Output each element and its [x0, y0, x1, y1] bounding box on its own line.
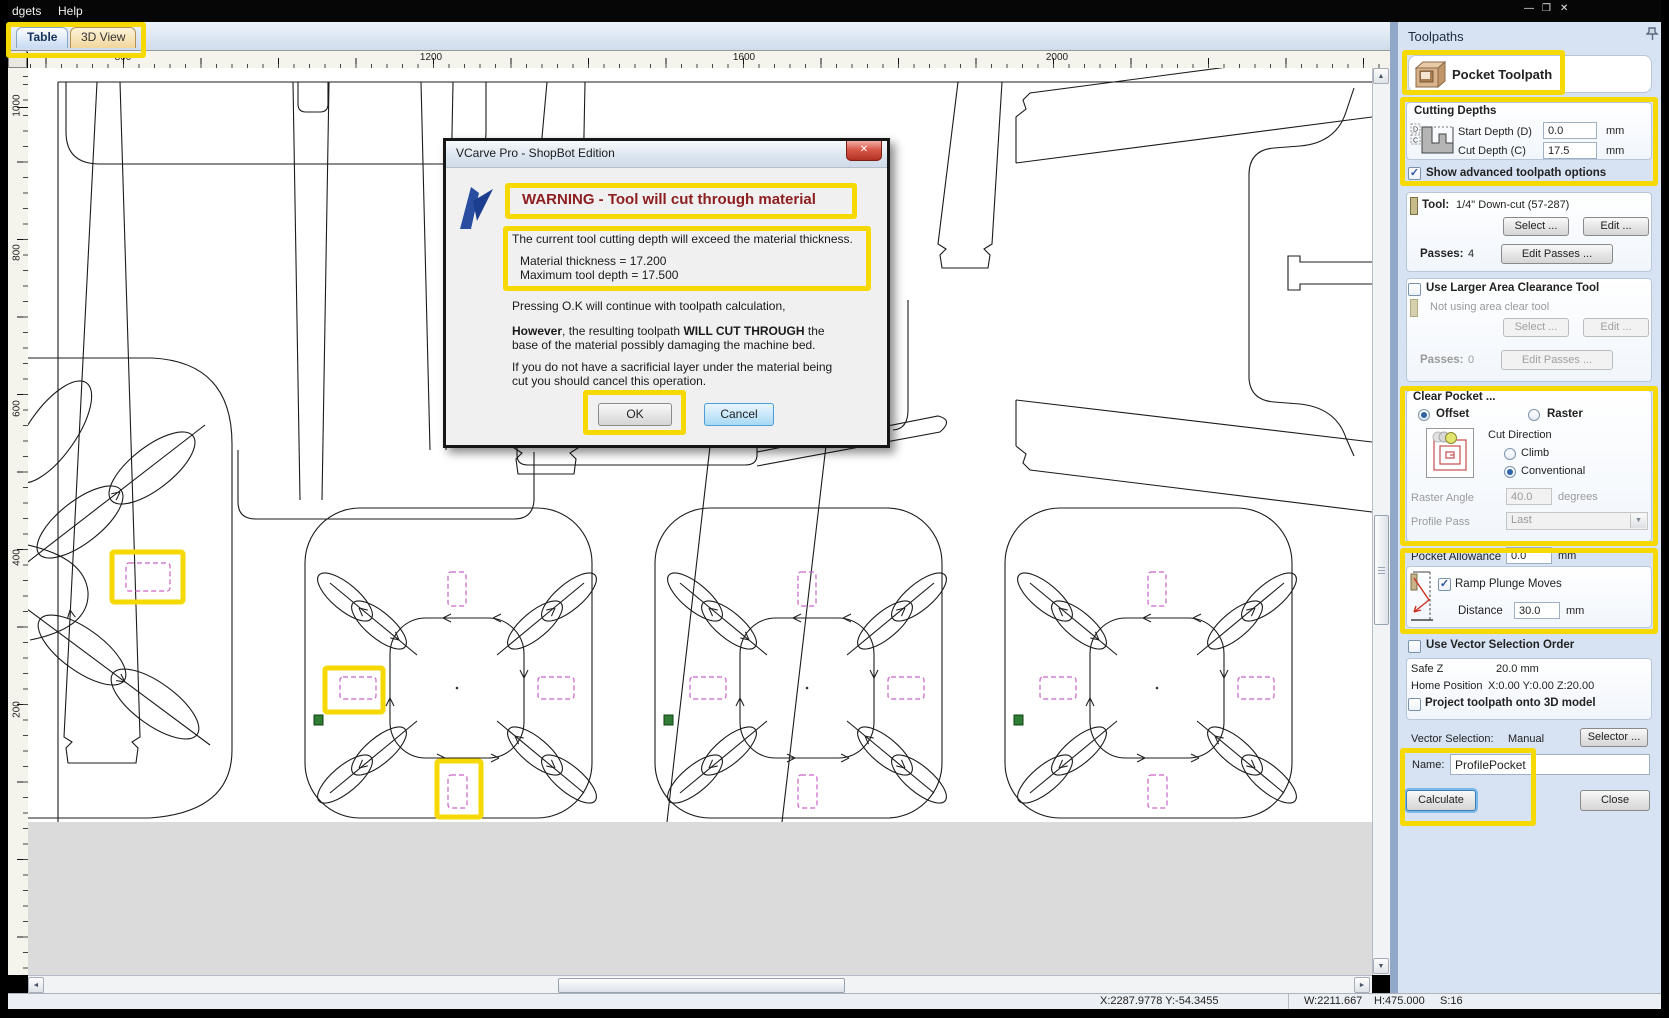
raster-radio[interactable]	[1528, 409, 1540, 421]
ramp-distance-input[interactable]	[1514, 602, 1560, 619]
highlight-boxes-canvas	[112, 552, 481, 817]
tab-3d-view[interactable]: 3D View	[70, 27, 136, 48]
cutting-depths-icon: D C	[1410, 121, 1454, 159]
vertical-scrollbar[interactable]: ▲ ▼	[1372, 68, 1391, 975]
selection-width: W:2211.667	[1304, 995, 1362, 1007]
area-passes-value: 0	[1468, 354, 1474, 366]
menu-item-gadgets[interactable]: dgets	[12, 4, 41, 18]
pin-icon[interactable]	[1646, 27, 1659, 42]
area-edit-passes-button[interactable]: Edit Passes ...	[1501, 350, 1613, 370]
ruler-label: 200	[12, 695, 23, 725]
show-advanced-label: Show advanced toolpath options	[1426, 167, 1606, 179]
ruler-label: 800	[115, 52, 132, 63]
area-clearance-label: Use Larger Area Clearance Tool	[1426, 282, 1599, 294]
toolpath-pattern-2	[661, 565, 954, 811]
start-depth-label: Start Depth (D)	[1458, 126, 1532, 138]
dialog-close-icon[interactable]: ✕	[846, 141, 882, 161]
horizontal-ruler: 800 1200 1600 2000	[28, 50, 1390, 70]
scroll-right-icon[interactable]: ►	[1354, 977, 1370, 993]
cut-depth-unit: mm	[1606, 145, 1624, 157]
svg-text:C: C	[1413, 138, 1418, 145]
vertical-scroll-thumb[interactable]	[1374, 515, 1389, 625]
ruler-label: 1200	[420, 52, 442, 63]
ramp-plunge-icon	[1409, 570, 1435, 624]
raster-angle-label: Raster Angle	[1411, 492, 1474, 504]
ramp-plunge-checkbox[interactable]: ✓	[1438, 578, 1451, 591]
selection-count: S:16	[1440, 995, 1463, 1007]
ruler-label: 400	[12, 543, 23, 573]
vector-selection-label: Vector Selection:	[1411, 733, 1494, 745]
restore-icon[interactable]: ❐	[1542, 3, 1551, 14]
dialog-titlebar[interactable]: VCarve Pro - ShopBot Edition ✕	[446, 141, 887, 168]
passes-value: 4	[1468, 248, 1474, 260]
tool-label: Tool:	[1422, 199, 1449, 211]
tab-table[interactable]: Table	[16, 27, 68, 48]
ramp-plunge-label: Ramp Plunge Moves	[1455, 578, 1562, 590]
dialog-title: VCarve Pro - ShopBot Edition	[456, 146, 615, 160]
conventional-label: Conventional	[1521, 465, 1585, 477]
selection-height: H:475.000	[1374, 995, 1425, 1007]
ramp-distance-label: Distance	[1458, 605, 1503, 617]
dialog-para-however: However, the resulting toolpath WILL CUT…	[512, 324, 852, 352]
edit-passes-button[interactable]: Edit Passes ...	[1501, 244, 1613, 264]
minimize-icon[interactable]: —	[1524, 3, 1534, 14]
cut-direction-label: Cut Direction	[1488, 429, 1552, 441]
ramp-distance-unit: mm	[1566, 605, 1584, 617]
home-position-value: X:0.00 Y:0.00 Z:20.00	[1488, 680, 1594, 692]
conventional-radio[interactable]	[1504, 466, 1516, 478]
offset-label: Offset	[1436, 408, 1469, 420]
chevron-down-icon[interactable]: ▼	[1630, 514, 1646, 528]
horizontal-scrollbar[interactable]: ◄ ►	[28, 975, 1372, 994]
area-passes-label: Passes:	[1420, 354, 1463, 366]
scroll-up-icon[interactable]: ▲	[1373, 68, 1389, 84]
horizontal-scroll-thumb[interactable]	[558, 978, 845, 993]
ok-button[interactable]: OK	[598, 403, 672, 426]
tool-edit-button[interactable]: Edit ...	[1583, 217, 1649, 236]
cursor-position: X:2287.9778 Y:-54.3455	[1100, 995, 1218, 1007]
panel-divider[interactable]	[1390, 22, 1398, 993]
climb-radio[interactable]	[1504, 448, 1516, 460]
scroll-down-icon[interactable]: ▼	[1373, 958, 1389, 974]
ruler-label: 1600	[733, 52, 755, 63]
tool-icon	[1410, 197, 1418, 215]
vcarve-logo-icon	[458, 185, 494, 231]
ruler-label: 1000	[12, 91, 23, 121]
raster-angle-input[interactable]	[1506, 488, 1552, 505]
tab-strip: Table 3D View	[8, 22, 1390, 52]
pocket-toolpath-icon	[1414, 60, 1446, 89]
status-separator	[1288, 994, 1289, 1009]
ruler-label: 2000	[1046, 52, 1068, 63]
show-advanced-checkbox[interactable]: ✓	[1408, 167, 1421, 180]
home-position-label: Home Position	[1411, 680, 1483, 692]
dialog-max-tool-depth: Maximum tool depth = 17.500	[520, 268, 678, 282]
area-clearance-checkbox[interactable]	[1408, 283, 1421, 296]
offset-pattern-icon	[1426, 428, 1474, 478]
pocket-allowance-input[interactable]	[1506, 547, 1552, 564]
dialog-line1: The current tool cutting depth will exce…	[512, 232, 853, 246]
cut-depth-label: Cut Depth (C)	[1458, 145, 1526, 157]
safe-z-value: 20.0 mm	[1496, 663, 1539, 675]
name-label: Name:	[1412, 759, 1444, 771]
close-panel-button[interactable]: Close	[1580, 790, 1650, 811]
dialog-heading: WARNING - Tool will cut through material	[512, 186, 856, 215]
dialog-material-thickness: Material thickness = 17.200	[520, 254, 666, 268]
ruler-label: 600	[12, 394, 23, 424]
panel-title: Toolpaths	[1408, 29, 1464, 44]
dialog-para-sacrificial: If you do not have a sacrificial layer u…	[512, 360, 842, 388]
degrees-label: degrees	[1558, 491, 1598, 503]
area-clearance-status: Not using area clear tool	[1430, 301, 1549, 313]
toolpath-name-input[interactable]	[1450, 754, 1650, 775]
start-depth-input[interactable]	[1543, 122, 1597, 139]
canvas-outer-area	[28, 822, 1372, 975]
start-depth-unit: mm	[1606, 125, 1624, 137]
dialog-para-ok: Pressing O.K will continue with toolpath…	[512, 299, 785, 313]
selector-button[interactable]: Selector ...	[1580, 728, 1648, 747]
close-window-icon[interactable]: ✕	[1560, 3, 1568, 14]
warning-dialog: VCarve Pro - ShopBot Edition ✕ WARNING -…	[443, 138, 890, 448]
calculate-button[interactable]: Calculate	[1406, 790, 1476, 811]
menu-bar: dgets Help — ❐ ✕	[8, 0, 1661, 22]
tool-value: 1/4" Down-cut (57-287)	[1456, 199, 1569, 211]
scroll-left-icon[interactable]: ◄	[28, 977, 44, 993]
vector-order-checkbox[interactable]	[1408, 640, 1421, 653]
climb-label: Climb	[1521, 447, 1549, 459]
profile-pass-value: Last	[1511, 514, 1532, 526]
raster-label: Raster	[1547, 408, 1583, 420]
status-bar: X:2287.9778 Y:-54.3455 W:2211.667 H:475.…	[8, 993, 1661, 1009]
passes-label: Passes:	[1420, 248, 1463, 260]
toolpath-pattern-1	[311, 565, 604, 811]
svg-text:D: D	[1413, 127, 1418, 134]
clear-pocket-heading: Clear Pocket ...	[1413, 391, 1495, 403]
tool-select-button[interactable]: Select ...	[1503, 217, 1569, 236]
ruler-label: 800	[12, 238, 23, 268]
profile-pass-label: Profile Pass	[1411, 516, 1470, 528]
cancel-button[interactable]: Cancel	[704, 403, 774, 426]
menu-item-help[interactable]: Help	[58, 4, 83, 18]
safe-z-label: Safe Z	[1411, 663, 1443, 675]
project-3d-label: Project toolpath onto 3D model	[1425, 697, 1596, 709]
offset-radio[interactable]	[1418, 409, 1430, 421]
area-select-button[interactable]: Select ...	[1503, 318, 1569, 337]
vector-selection-value: Manual	[1508, 733, 1544, 745]
profile-pass-select[interactable]: Last ▼	[1506, 512, 1648, 530]
vertical-ruler: 1000 800 600 400 200	[8, 68, 29, 975]
pocket-allowance-unit: mm	[1558, 550, 1576, 562]
cut-depth-input[interactable]	[1543, 142, 1597, 159]
area-edit-button[interactable]: Edit ...	[1583, 318, 1649, 337]
cutting-depths-heading: Cutting Depths	[1414, 105, 1496, 117]
app-window: dgets Help — ❐ ✕ Table 3D View 800 1200 …	[0, 0, 1669, 1018]
pocket-allowance-label: Pocket Allowance	[1411, 551, 1501, 563]
project-3d-checkbox[interactable]	[1408, 698, 1421, 711]
ruler-corner	[8, 50, 27, 68]
vector-order-label: Use Vector Selection Order	[1426, 639, 1574, 651]
area-clear-tool-icon	[1410, 299, 1418, 317]
pocket-toolpath-title: Pocket Toolpath	[1452, 67, 1552, 82]
toolpath-pattern-3	[1011, 565, 1304, 811]
